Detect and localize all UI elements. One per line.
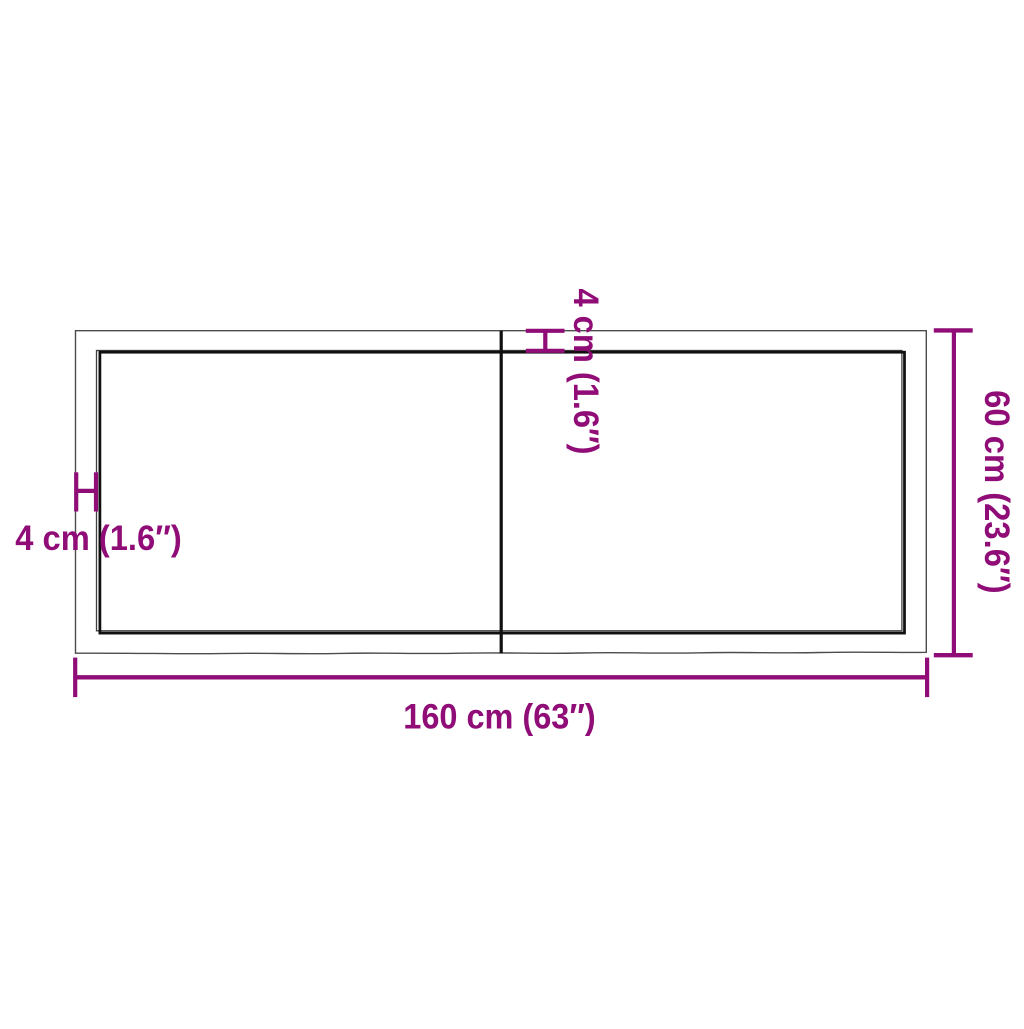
svg-text:4 cm (1.6″): 4 cm (1.6″) [15,518,182,558]
svg-text:160 cm (63″): 160 cm (63″) [403,697,596,737]
svg-text:60 cm (23.6″): 60 cm (23.6″) [977,390,1017,594]
svg-text:4 cm (1.6″): 4 cm (1.6″) [566,289,606,455]
